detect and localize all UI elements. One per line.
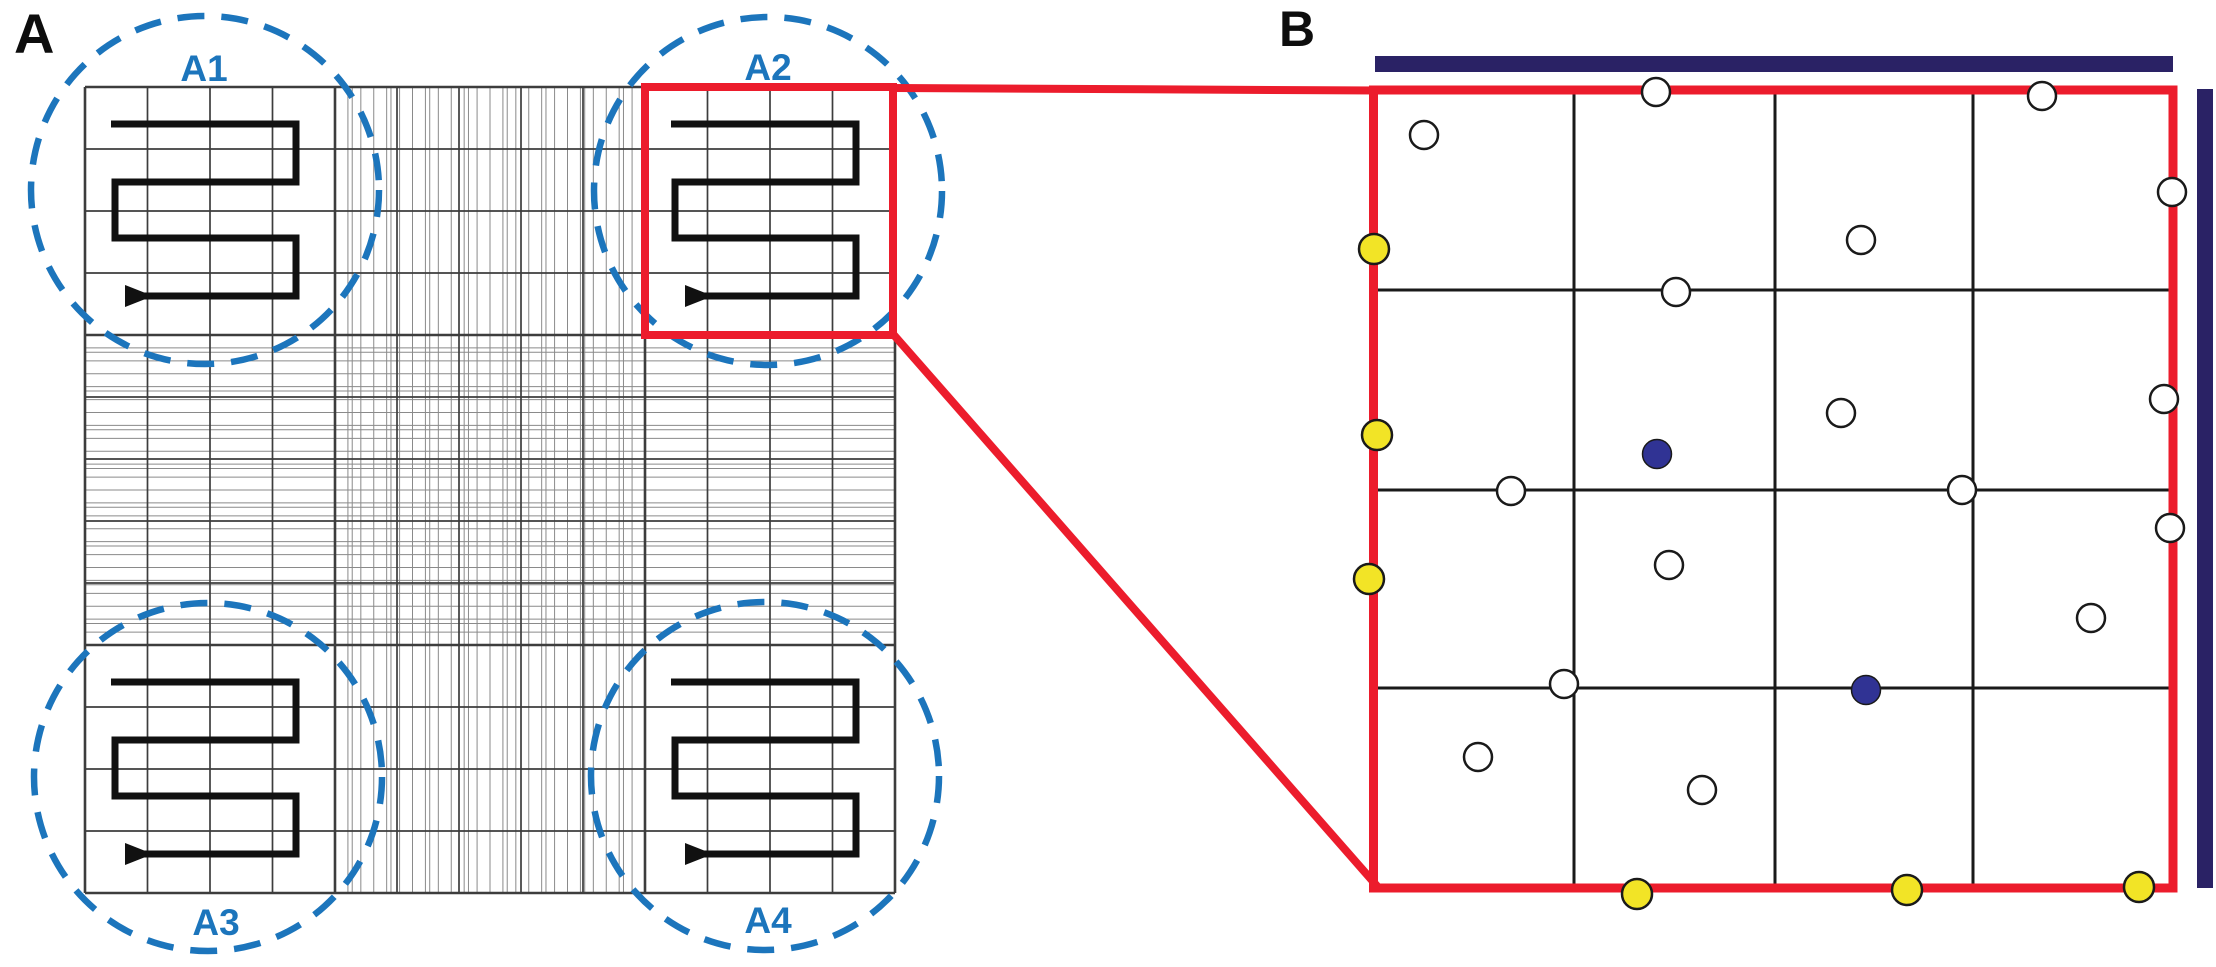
cell-dot-yellow bbox=[1362, 420, 1392, 450]
cell-dot-open bbox=[2077, 604, 2105, 632]
cell-dot-open bbox=[2150, 385, 2178, 413]
cell-dot-open bbox=[1948, 476, 1976, 504]
cell-dots bbox=[1354, 78, 2186, 909]
cell-dot-yellow bbox=[1354, 564, 1384, 594]
cell-dot-yellow bbox=[1892, 875, 1922, 905]
cell-dot-open bbox=[2156, 514, 2184, 542]
region-label-A4: A4 bbox=[744, 900, 792, 941]
hemocytometer-figure-svg: A1A2A3A4 bbox=[0, 0, 2216, 967]
cell-dot-open bbox=[1847, 226, 1875, 254]
cell-dot-open bbox=[2028, 82, 2056, 110]
cell-dot-open bbox=[1410, 121, 1438, 149]
region-label-A2: A2 bbox=[744, 47, 791, 88]
cell-dot-yellow bbox=[1359, 234, 1389, 264]
cell-dot-open bbox=[1497, 477, 1525, 505]
region-label-A3: A3 bbox=[192, 902, 239, 943]
cell-dot-yellow bbox=[1622, 879, 1652, 909]
zoom-connector-bottom bbox=[893, 334, 1377, 886]
cell-dot-navy bbox=[1643, 440, 1672, 469]
cell-dot-open bbox=[1688, 776, 1716, 804]
cell-dot-navy bbox=[1852, 676, 1881, 705]
region-circle-A4 bbox=[591, 602, 939, 950]
cell-dot-open bbox=[1655, 551, 1683, 579]
hemocytometer-fine-grid bbox=[85, 87, 895, 893]
cell-dot-open bbox=[1550, 670, 1578, 698]
cell-dot-yellow bbox=[2124, 872, 2154, 902]
cell-dot-open bbox=[1464, 743, 1492, 771]
zoom-connector-top bbox=[893, 88, 1378, 91]
coverslip-bar-top bbox=[1375, 56, 2173, 72]
cell-dot-open bbox=[1642, 78, 1670, 106]
cell-dot-open bbox=[1827, 399, 1855, 427]
figure-canvas: A B A1A2A3A4 bbox=[0, 0, 2216, 967]
coverslip-bar-right bbox=[2197, 89, 2213, 888]
region-label-A1: A1 bbox=[180, 48, 227, 89]
cell-dot-open bbox=[2158, 178, 2186, 206]
cell-dot-open bbox=[1662, 278, 1690, 306]
magnified-grid bbox=[1373, 90, 2173, 888]
